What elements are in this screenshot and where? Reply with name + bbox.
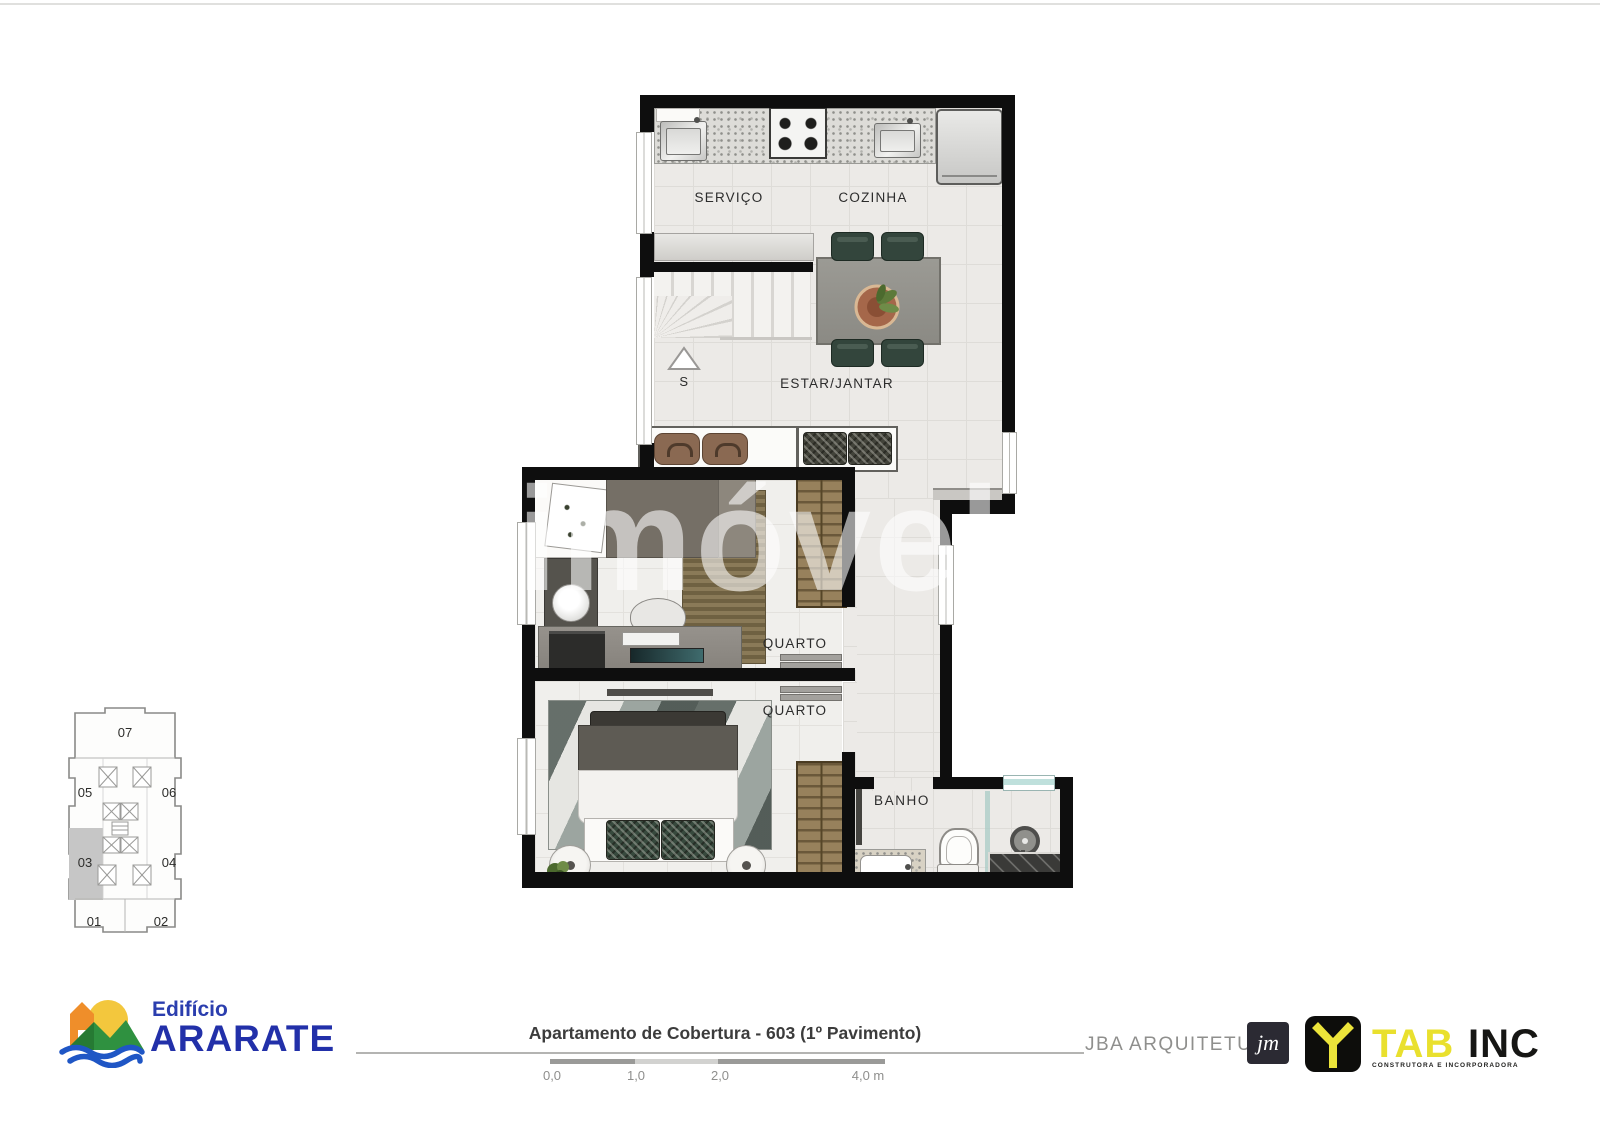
- room-label-estar-jantar: ESTAR/JANTAR: [757, 376, 917, 391]
- window: [517, 522, 536, 625]
- wall: [640, 95, 654, 132]
- wall: [640, 232, 654, 277]
- room-label-quarto-1: QUARTO: [725, 636, 865, 651]
- stair-wall: [640, 262, 813, 272]
- table-plant-icon: [851, 281, 903, 333]
- dining-chair: [881, 232, 924, 261]
- stair-direction-arrow-icon: [666, 345, 702, 372]
- floor-plan-sheet: SERVIÇO COZINHA S ESTAR/JANTAR QUARTO: [0, 0, 1600, 1130]
- pouf-icon: [702, 433, 748, 465]
- sheet-title: Apartamento de Cobertura - 603 (1º Pavim…: [450, 1023, 1000, 1044]
- stair-label: S: [664, 374, 704, 389]
- wall: [522, 467, 855, 480]
- wall: [842, 752, 855, 872]
- jm-monogram-badge: jm: [1247, 1022, 1289, 1064]
- keyplan-unit-06: 06: [162, 785, 176, 800]
- scale-bar-segment: [718, 1059, 885, 1064]
- sheet-top-edge: [0, 3, 1600, 5]
- wall: [933, 777, 1003, 789]
- tab-logo-icon: [1305, 1016, 1361, 1072]
- keyboard-icon: [622, 632, 680, 646]
- developer-brand: TAB: [1372, 1022, 1454, 1067]
- faucet-icon: [905, 864, 911, 870]
- scale-bar-segment: [635, 1059, 718, 1064]
- wall: [1060, 777, 1073, 888]
- keyplan-unit-02: 02: [154, 914, 168, 929]
- living-rail: [933, 488, 1003, 500]
- window: [636, 277, 652, 445]
- wall: [940, 500, 952, 545]
- dining-chair: [831, 339, 874, 367]
- scale-tick: 4,0 m: [852, 1068, 885, 1083]
- window: [636, 132, 652, 234]
- wall: [940, 623, 952, 777]
- wall: [640, 95, 1015, 108]
- bed-pillow: [544, 483, 609, 554]
- sliding-door: [780, 654, 842, 661]
- wardrobe: [796, 761, 847, 877]
- wall: [1002, 95, 1015, 432]
- sliding-door: [780, 694, 842, 701]
- double-bed-blanket: [578, 725, 738, 775]
- cushion-icon: [803, 432, 847, 465]
- dining-chair: [831, 232, 874, 261]
- wall: [522, 467, 535, 522]
- keyplan-unit-07: 07: [118, 725, 132, 740]
- pouf-icon: [654, 433, 700, 465]
- window: [1002, 432, 1017, 494]
- monitor-icon: [630, 648, 704, 663]
- developer-suffix: INC: [1468, 1022, 1540, 1067]
- fridge-icon: [936, 109, 1003, 185]
- bed-blanket: [606, 478, 720, 558]
- laundry-sink-icon: [660, 121, 707, 161]
- window: [517, 738, 536, 835]
- lamp-icon: [552, 584, 590, 622]
- kitchen-sink-icon: [874, 123, 921, 158]
- bed-blanket-fold: [718, 478, 756, 558]
- dining-chair: [881, 339, 924, 367]
- sliding-door: [780, 686, 842, 693]
- developer-tagline: CONSTRUTORA E INCORPORADORA: [1372, 1062, 1519, 1069]
- window: [938, 545, 954, 625]
- footer-rule: [356, 1052, 1084, 1054]
- building-name-line2: ARARATE: [150, 1018, 335, 1060]
- wall: [842, 777, 874, 789]
- room-label-servico: SERVIÇO: [659, 190, 799, 205]
- room-label-quarto-2: QUARTO: [725, 703, 865, 718]
- leaf-cushion-icon: [606, 820, 660, 860]
- scale-tick: 1,0: [627, 1068, 645, 1083]
- door-threshold: [872, 777, 933, 791]
- wardrobe: [796, 477, 847, 608]
- staircase-winders: [654, 296, 732, 338]
- cushion-icon: [848, 432, 892, 465]
- sink-basin: [880, 130, 915, 152]
- corridor-floor: [855, 498, 940, 777]
- wall: [842, 467, 855, 607]
- faucet-icon: [694, 117, 700, 123]
- room-label-cozinha: COZINHA: [803, 190, 943, 205]
- wall: [522, 668, 855, 681]
- keyplan-unit-04: 04: [162, 855, 176, 870]
- scale-tick: 2,0: [711, 1068, 729, 1083]
- double-bed-duvet: [578, 770, 738, 824]
- wall: [522, 872, 1073, 888]
- keyplan-unit-03: 03: [78, 855, 92, 870]
- keyplan: 07 05 06 03 04 01 02: [55, 703, 195, 935]
- stair-edge-line: [720, 337, 812, 340]
- stove-icon: [769, 107, 827, 159]
- ararate-logo-icon: [58, 990, 148, 1068]
- faucet-icon: [907, 118, 913, 124]
- sink-basin: [666, 128, 701, 155]
- keyplan-unit-01: 01: [87, 914, 101, 929]
- room-label-banho: BANHO: [840, 793, 964, 808]
- wall-shelf: [607, 689, 713, 696]
- bathroom-window: [1003, 775, 1055, 791]
- scale-tick: 0,0: [543, 1068, 561, 1083]
- tv-icon: [549, 631, 605, 669]
- leaf-cushion-icon: [661, 820, 715, 860]
- keyplan-unit-05: 05: [78, 785, 92, 800]
- stair-half-wall-counter: [654, 233, 814, 261]
- scale-bar-segment: [550, 1059, 635, 1064]
